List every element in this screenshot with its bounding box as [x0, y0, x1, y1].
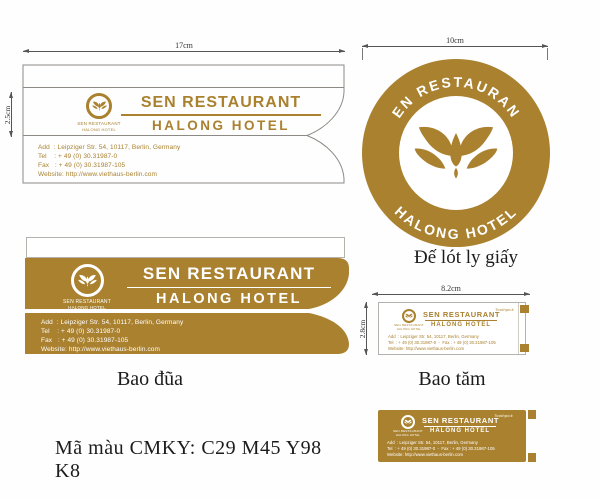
tel-line: Tel : + 49 (0) 30.31987-0 [38, 152, 180, 161]
address-block: Add : Leipziger Str. 54, 10117, Berlin, … [388, 334, 496, 353]
dimension-2.5cm-label: 2.5cm [3, 105, 12, 124]
title-divider [425, 320, 498, 321]
hotel-title: HALONG HOTEL [115, 118, 327, 133]
glue-tab [528, 453, 536, 462]
lotus-icon [405, 313, 413, 319]
caption-chopstick: Bao đũa [75, 368, 225, 391]
arrow-down-icon [9, 131, 13, 137]
brand-logo: SEN RESTAURANT HALONG HOTEL [392, 415, 424, 437]
lotus-icon [404, 419, 412, 425]
lotus-icon [78, 274, 97, 287]
logo-hotel-name: HALONG HOTEL [396, 434, 420, 437]
lotus-icon [92, 101, 107, 111]
fold-line [518, 303, 519, 354]
restaurant-title: SEN RESTAURANT [423, 310, 499, 319]
arrow-up-icon [364, 302, 368, 308]
arrow-left-icon [372, 292, 378, 296]
dimension-2.5cm: 2.5cm [11, 92, 12, 137]
logo-ring [402, 309, 416, 323]
dimension-8.2cm: 8.2cm [372, 284, 530, 295]
caption-coaster: Đế lót ly giấy [386, 247, 546, 269]
sleeve-top-flap [26, 237, 345, 258]
hotel-title: HALONG HOTEL [120, 291, 338, 307]
address-block: Add : Leipziger Str. 54, 10117, Berlin, … [38, 143, 180, 179]
chopstick-sleeve-gold: SEN RESTAURANT HALONG HOTEL SEN RESTAURA… [25, 237, 349, 355]
brand-title-block: SEN RESTAURANT HALONG HOTEL [423, 310, 499, 328]
paper-coaster: SEN RESTAURANT HALONG HOTEL [356, 53, 556, 253]
design-proof-sheet: 17cm 2.5cm SEN RESTAURANT HALONG HOTEL S… [0, 0, 600, 499]
hotel-title: HALONG HOTEL [422, 428, 498, 434]
hotel-title: HALONG HOTEL [423, 322, 499, 328]
restaurant-title: SEN RESTAURANT [422, 416, 498, 425]
title-divider [127, 287, 332, 289]
toothpick-note: Toothpick [495, 307, 514, 312]
brand-title-block: SEN RESTAURANT HALONG HOTEL [422, 416, 498, 434]
dimension-17cm: 17cm [23, 41, 345, 52]
arrow-up-icon [9, 92, 13, 98]
dimension-line [372, 294, 530, 295]
tel-line: Tel : + 49 (0) 30.31987-0 [41, 327, 183, 336]
cmyk-note: Mã màu CMKY: C29 M45 Y98 K8 [55, 437, 335, 483]
address-block: Add : Leipziger Str. 54, 10117, Berlin, … [387, 440, 495, 459]
title-divider [121, 114, 320, 116]
glue-tab [528, 410, 536, 419]
restaurant-title: SEN RESTAURANT [115, 94, 327, 112]
address-line: Add : Leipziger Str. 54, 10117, Berlin, … [38, 143, 180, 152]
dimension-8.2cm-label: 8.2cm [372, 284, 530, 293]
toothpick-sleeve-gold: SEN RESTAURANT HALONG HOTEL SEN RESTAURA… [378, 410, 526, 462]
caption-toothpick: Bao tăm [377, 368, 527, 391]
logo-hotel-name: HALONG HOTEL [82, 127, 116, 132]
logo-ring [401, 415, 415, 429]
brand-logo: SEN RESTAURANT HALONG HOTEL [393, 309, 425, 331]
arrow-down-icon [364, 349, 368, 355]
dimension-10cm: 10cm [362, 36, 548, 47]
website-line: Website: http://www.viethaus-berlin.com [387, 452, 495, 458]
fax-line: Fax : + 49 (0) 30.31987-105 [38, 161, 180, 170]
arrow-right-icon [339, 49, 345, 53]
fax-line: Fax : + 49 (0) 30.31987-105 [41, 336, 183, 345]
website-line: Website: http://www.viethaus-berlin.com [388, 346, 496, 352]
arrow-left-icon [23, 49, 29, 53]
brand-logo: SEN RESTAURANT HALONG HOTEL [55, 264, 119, 311]
logo-ring [86, 93, 112, 119]
logo-hotel-name: HALONG HOTEL [68, 305, 106, 311]
dimension-2.8cm: 2.8cm [366, 302, 367, 355]
title-divider [424, 426, 497, 427]
chopstick-sleeve-flat: SEN RESTAURANT HALONG HOTEL SEN RESTAURA… [23, 65, 345, 183]
website-line: Website: http://www.viethaus-berlin.com [41, 345, 183, 354]
dimension-line [23, 51, 345, 52]
dimension-10cm-label: 10cm [362, 36, 548, 45]
dimension-17cm-label: 17cm [23, 41, 345, 50]
brand-title-block: SEN RESTAURANT HALONG HOTEL [120, 264, 338, 307]
address-block: Add : Leipziger Str. 54, 10117, Berlin, … [41, 318, 183, 354]
restaurant-title: SEN RESTAURANT [120, 264, 338, 284]
address-line: Add : Leipziger Str. 54, 10117, Berlin, … [41, 318, 183, 327]
logo-ring [71, 264, 104, 297]
logo-hotel-name: HALONG HOTEL [397, 328, 421, 331]
arrow-right-icon [524, 292, 530, 296]
dimension-line [362, 46, 548, 47]
website-line: Website: http://www.viethaus-berlin.com [38, 170, 180, 179]
glue-tab [520, 344, 529, 352]
toothpick-sleeve-white: SEN RESTAURANT HALONG HOTEL SEN RESTAURA… [378, 302, 526, 355]
glue-tab [520, 305, 529, 313]
toothpick-note: Toothpick [494, 413, 513, 418]
dimension-2.8cm-label: 2.8cm [358, 319, 367, 338]
brand-title-block: SEN RESTAURANT HALONG HOTEL [115, 94, 327, 133]
